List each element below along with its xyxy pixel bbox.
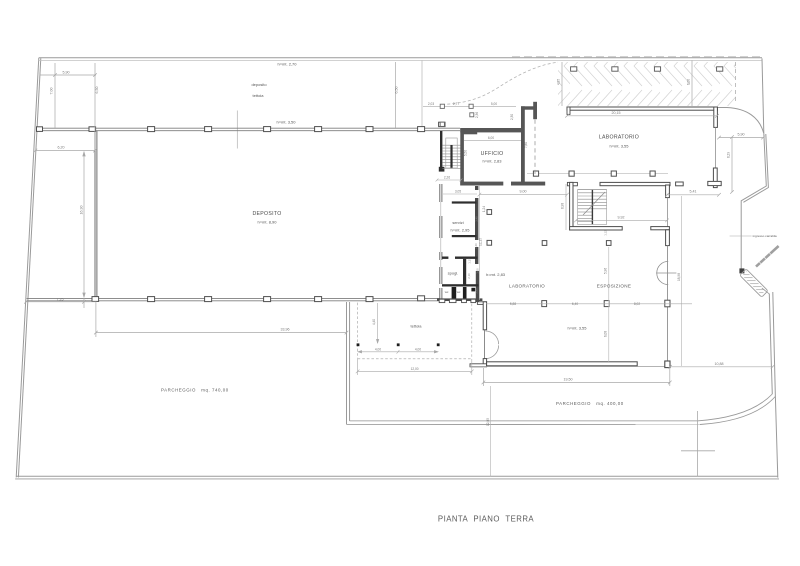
svg-text:7,00: 7,00 bbox=[50, 88, 54, 95]
svg-text:3,40: 3,40 bbox=[474, 216, 478, 222]
svg-text:2,30: 2,30 bbox=[510, 114, 514, 120]
svg-text:3,80: 3,80 bbox=[475, 288, 479, 294]
svg-text:LABORATORIO: LABORATORIO bbox=[509, 284, 545, 289]
svg-text:6,00: 6,00 bbox=[687, 79, 691, 85]
svg-text:7,25: 7,25 bbox=[57, 298, 64, 302]
svg-text:4,00: 4,00 bbox=[375, 347, 381, 351]
svg-text:h=mt. 3,55: h=mt. 3,55 bbox=[567, 325, 587, 330]
svg-text:servizi: servizi bbox=[452, 220, 463, 225]
svg-text:1,12: 1,12 bbox=[603, 230, 607, 236]
svg-text:DEPOSITO: DEPOSITO bbox=[252, 211, 281, 217]
svg-text:2,10: 2,10 bbox=[467, 273, 471, 279]
svg-text:6,08: 6,08 bbox=[604, 331, 608, 337]
svg-text:7,80: 7,80 bbox=[524, 142, 528, 148]
svg-text:16,30: 16,30 bbox=[79, 206, 83, 215]
svg-text:2,77: 2,77 bbox=[453, 102, 459, 106]
svg-text:6,20: 6,20 bbox=[58, 145, 65, 149]
svg-text:tettoia: tettoia bbox=[411, 323, 423, 328]
svg-text:5,50: 5,50 bbox=[464, 150, 468, 156]
svg-text:12,00: 12,00 bbox=[411, 367, 419, 371]
svg-text:tettoia: tettoia bbox=[253, 93, 265, 98]
svg-text:ingresso carrabile: ingresso carrabile bbox=[753, 234, 778, 238]
svg-text:deposito: deposito bbox=[251, 82, 267, 87]
svg-text:4,00: 4,00 bbox=[415, 347, 421, 351]
svg-text:4,85: 4,85 bbox=[557, 79, 561, 85]
svg-text:1,17: 1,17 bbox=[468, 258, 472, 264]
svg-text:ESPOSIZIONE: ESPOSIZIONE bbox=[597, 284, 631, 289]
svg-text:2,20: 2,20 bbox=[474, 243, 478, 249]
svg-text:5,90: 5,90 bbox=[738, 132, 745, 136]
svg-text:h=mt. 2,70: h=mt. 2,70 bbox=[277, 61, 297, 66]
svg-text:6,50: 6,50 bbox=[395, 87, 399, 94]
svg-text:5,90: 5,90 bbox=[63, 70, 70, 74]
svg-text:6,40: 6,40 bbox=[572, 302, 578, 306]
svg-text:wc: wc bbox=[445, 290, 449, 294]
svg-text:PIANTA PIANO TERRA: PIANTA PIANO TERRA bbox=[438, 514, 534, 523]
svg-text:33,96: 33,96 bbox=[281, 327, 290, 331]
svg-text:8,02: 8,02 bbox=[634, 302, 640, 306]
svg-text:wc: wc bbox=[457, 290, 461, 294]
svg-text:9,00: 9,00 bbox=[520, 190, 527, 194]
svg-text:10,88: 10,88 bbox=[715, 362, 724, 366]
svg-text:20,15: 20,15 bbox=[612, 111, 621, 115]
svg-text:1,60: 1,60 bbox=[475, 268, 479, 274]
svg-text:2,03: 2,03 bbox=[428, 102, 434, 106]
svg-text:2,26: 2,26 bbox=[444, 176, 450, 180]
svg-text:12,85: 12,85 bbox=[486, 418, 490, 426]
svg-text:5,96: 5,96 bbox=[604, 268, 608, 274]
svg-text:5,41: 5,41 bbox=[690, 190, 697, 194]
svg-text:h=mt. 3,50: h=mt. 3,50 bbox=[276, 120, 296, 125]
svg-text:4,40: 4,40 bbox=[372, 319, 376, 325]
svg-text:5,88: 5,88 bbox=[510, 302, 516, 306]
svg-text:h=mt. 2,95: h=mt. 2,95 bbox=[450, 228, 470, 233]
svg-text:h=mt. 2,83: h=mt. 2,83 bbox=[482, 159, 502, 164]
svg-text:6,50: 6,50 bbox=[95, 87, 99, 94]
svg-text:h=mt. 2,83: h=mt. 2,83 bbox=[486, 272, 506, 277]
svg-text:1,24: 1,24 bbox=[482, 206, 486, 212]
svg-text:h=mt. 3,55: h=mt. 3,55 bbox=[609, 143, 629, 148]
svg-text:12,15: 12,15 bbox=[478, 238, 482, 246]
svg-text:6,00: 6,00 bbox=[488, 136, 494, 140]
svg-text:LABORATORIO: LABORATORIO bbox=[599, 135, 639, 141]
svg-text:5,00: 5,00 bbox=[491, 102, 497, 106]
svg-text:2,36: 2,36 bbox=[475, 112, 479, 118]
svg-text:h=mt. 8,90: h=mt. 8,90 bbox=[257, 219, 277, 224]
svg-text:19,50: 19,50 bbox=[564, 378, 573, 382]
svg-text:PARCHEGGIO mq. 740,00: PARCHEGGIO mq. 740,00 bbox=[161, 388, 229, 393]
svg-text:PARCHEGGIO mq. 400,00: PARCHEGGIO mq. 400,00 bbox=[556, 401, 624, 406]
svg-text:8,29: 8,29 bbox=[727, 152, 731, 158]
svg-text:9,92: 9,92 bbox=[618, 215, 625, 219]
svg-text:18,98: 18,98 bbox=[677, 273, 681, 281]
svg-text:spogl.: spogl. bbox=[448, 270, 459, 275]
svg-text:UFFICIO: UFFICIO bbox=[481, 151, 504, 157]
svg-text:3,05: 3,05 bbox=[455, 190, 461, 194]
svg-text:8,98: 8,98 bbox=[561, 203, 565, 209]
